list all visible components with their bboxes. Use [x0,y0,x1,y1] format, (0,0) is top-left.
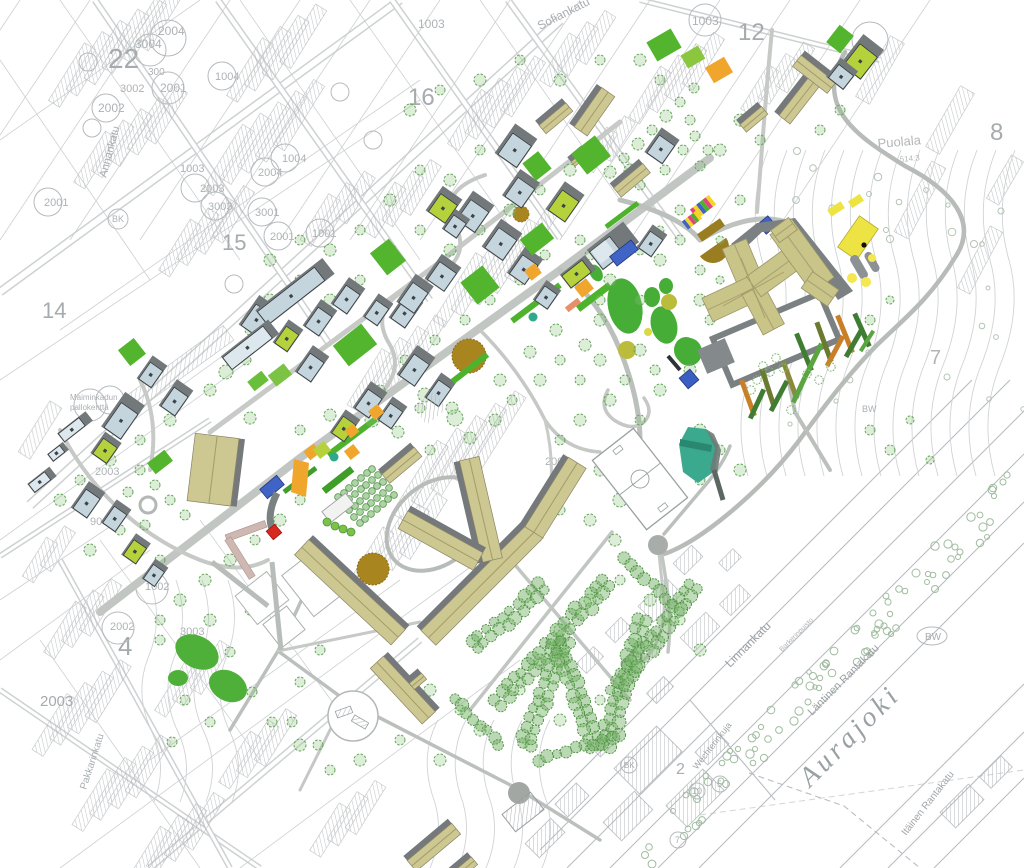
svg-text:BW: BW [925,632,942,643]
svg-text:10: 10 [692,786,702,796]
svg-text:7: 7 [930,347,941,369]
svg-text:3002: 3002 [120,83,144,95]
svg-text:12: 12 [738,19,765,46]
svg-text:BK: BK [112,214,124,224]
svg-text:5: 5 [717,779,722,789]
svg-text:2003: 2003 [95,466,119,478]
svg-text:14: 14 [42,298,66,323]
svg-text:BW: BW [862,404,877,414]
svg-text:15: 15 [222,230,246,255]
svg-text:pallokenttä: pallokenttä [70,403,109,412]
svg-text:2001: 2001 [44,197,68,209]
svg-text:1003: 1003 [418,17,445,31]
svg-text:2002: 2002 [98,101,125,115]
svg-text:2: 2 [676,761,685,778]
svg-text:4: 4 [118,631,132,661]
svg-text:Maiminkadun: Maiminkadun [70,393,118,402]
svg-text:1003: 1003 [692,14,719,28]
svg-text:BK: BK [624,761,635,770]
svg-text:1003: 1003 [180,163,204,175]
svg-text:7: 7 [675,835,680,845]
svg-text:8: 8 [990,119,1003,146]
svg-text:3004: 3004 [135,37,162,51]
svg-text:1004: 1004 [282,153,306,165]
svg-text:2003: 2003 [40,693,73,710]
svg-text:2002: 2002 [110,621,134,633]
